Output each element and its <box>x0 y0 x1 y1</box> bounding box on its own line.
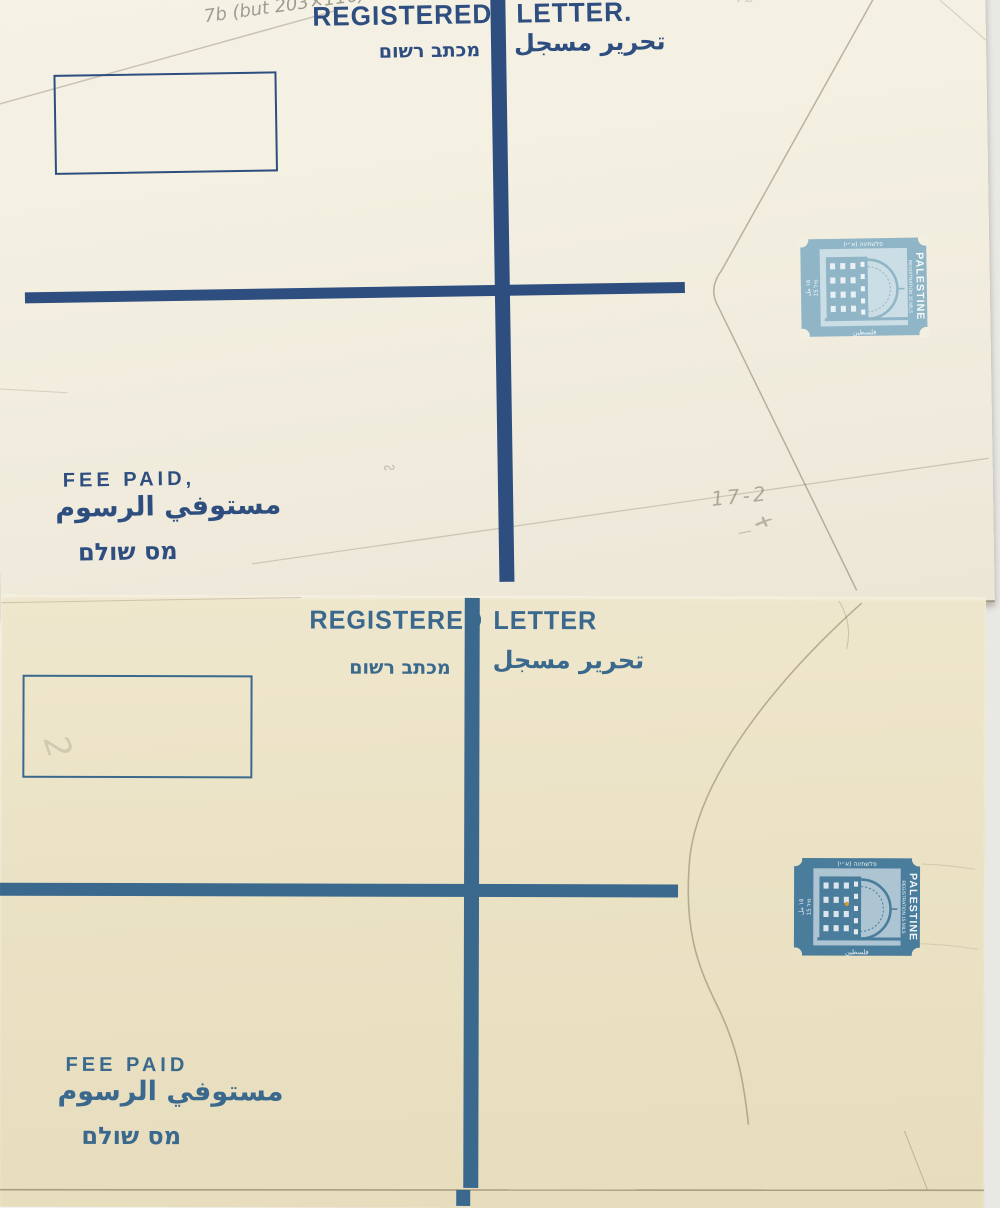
stamp-value-arabic-top: ١٥ مل <box>805 280 812 296</box>
horizontal-rule-top <box>25 282 685 303</box>
stamp-hebrew-bottom: פלשתינה (א״י) <box>837 861 877 868</box>
palestine-registration-stamp-bottom: PALESTINE REGISTRATION 15 MILS פלשתינה (… <box>792 856 922 958</box>
stamp-value-hebrew-bottom: 15 מיל <box>806 898 813 915</box>
vertical-rule-bottom-offset <box>456 1190 470 1206</box>
palestine-registration-stamp-top: PALESTINE REGISTRATION 15 MILS פלשתינה (… <box>798 235 930 339</box>
registration-label-box-top <box>53 71 278 174</box>
stamp-hebrew-top: פלשתינה (א״י) <box>843 241 883 249</box>
pencil-note-17-2: 17-2 <box>710 481 770 511</box>
fee-paid-arabic-top: مستوفي الرسوم <box>55 489 281 524</box>
fee-paid-english-top: FEE PAID, <box>63 468 196 493</box>
pencil-dash-mark: — <box>736 523 753 541</box>
stamp-arabic-top: فلسطين <box>853 328 877 336</box>
stamp-service-top: REGISTRATION 15 MILS <box>908 260 914 313</box>
letter-word-top: LETTER. <box>516 0 632 30</box>
stamp-country-top: PALESTINE <box>913 252 926 320</box>
pencil-check-mark: ✗ <box>751 511 777 534</box>
letter-word-bottom: LETTER <box>493 605 597 636</box>
envelope-top: REGISTERED LETTER. מכתב רשום تحرير مسجل <box>0 0 995 618</box>
stamp-arabic-bottom: فلسطين <box>845 948 869 956</box>
stamp-value-hebrew-top: 15 מיל <box>813 279 820 296</box>
stamp-value-arabic-bottom: ١٥ مل <box>798 899 805 915</box>
arabic-subheader-top: تحرير مسجل <box>514 27 666 57</box>
fee-paid-hebrew-bottom: מס שולם <box>81 1122 181 1150</box>
photo-of-two-registered-envelopes: REGISTERED LETTER. מכתב רשום تحرير مسجل <box>0 0 1000 1208</box>
arabic-subheader-bottom: تحرير مسجل <box>493 646 645 674</box>
hebrew-subheader-top: מכתב רשום <box>344 39 480 63</box>
orange-speck <box>845 902 849 906</box>
horizontal-rule-bottom <box>0 883 678 898</box>
stamp-country-bottom: PALESTINE <box>907 873 919 941</box>
pencil-squiggle-center: ∾ <box>382 458 396 477</box>
fee-paid-arabic-bottom: مستوفي الرسوم <box>57 1076 283 1108</box>
envelope-bottom: REGISTERED LETTER מכתב רשום تحرير مسجل 2 <box>0 595 986 1208</box>
fee-paid-hebrew-top: מס שולם <box>78 537 178 567</box>
registered-word-bottom: REGISTERED <box>309 605 483 636</box>
hebrew-subheader-bottom: מכתב רשום <box>319 657 451 679</box>
pencil-note-top-right: 7b <box>735 0 754 6</box>
fee-paid-english-bottom: FEE PAID <box>66 1054 189 1077</box>
registration-label-box-bottom <box>22 675 252 779</box>
stamp-service-bottom: REGISTRATION 15 MILS <box>901 880 906 933</box>
